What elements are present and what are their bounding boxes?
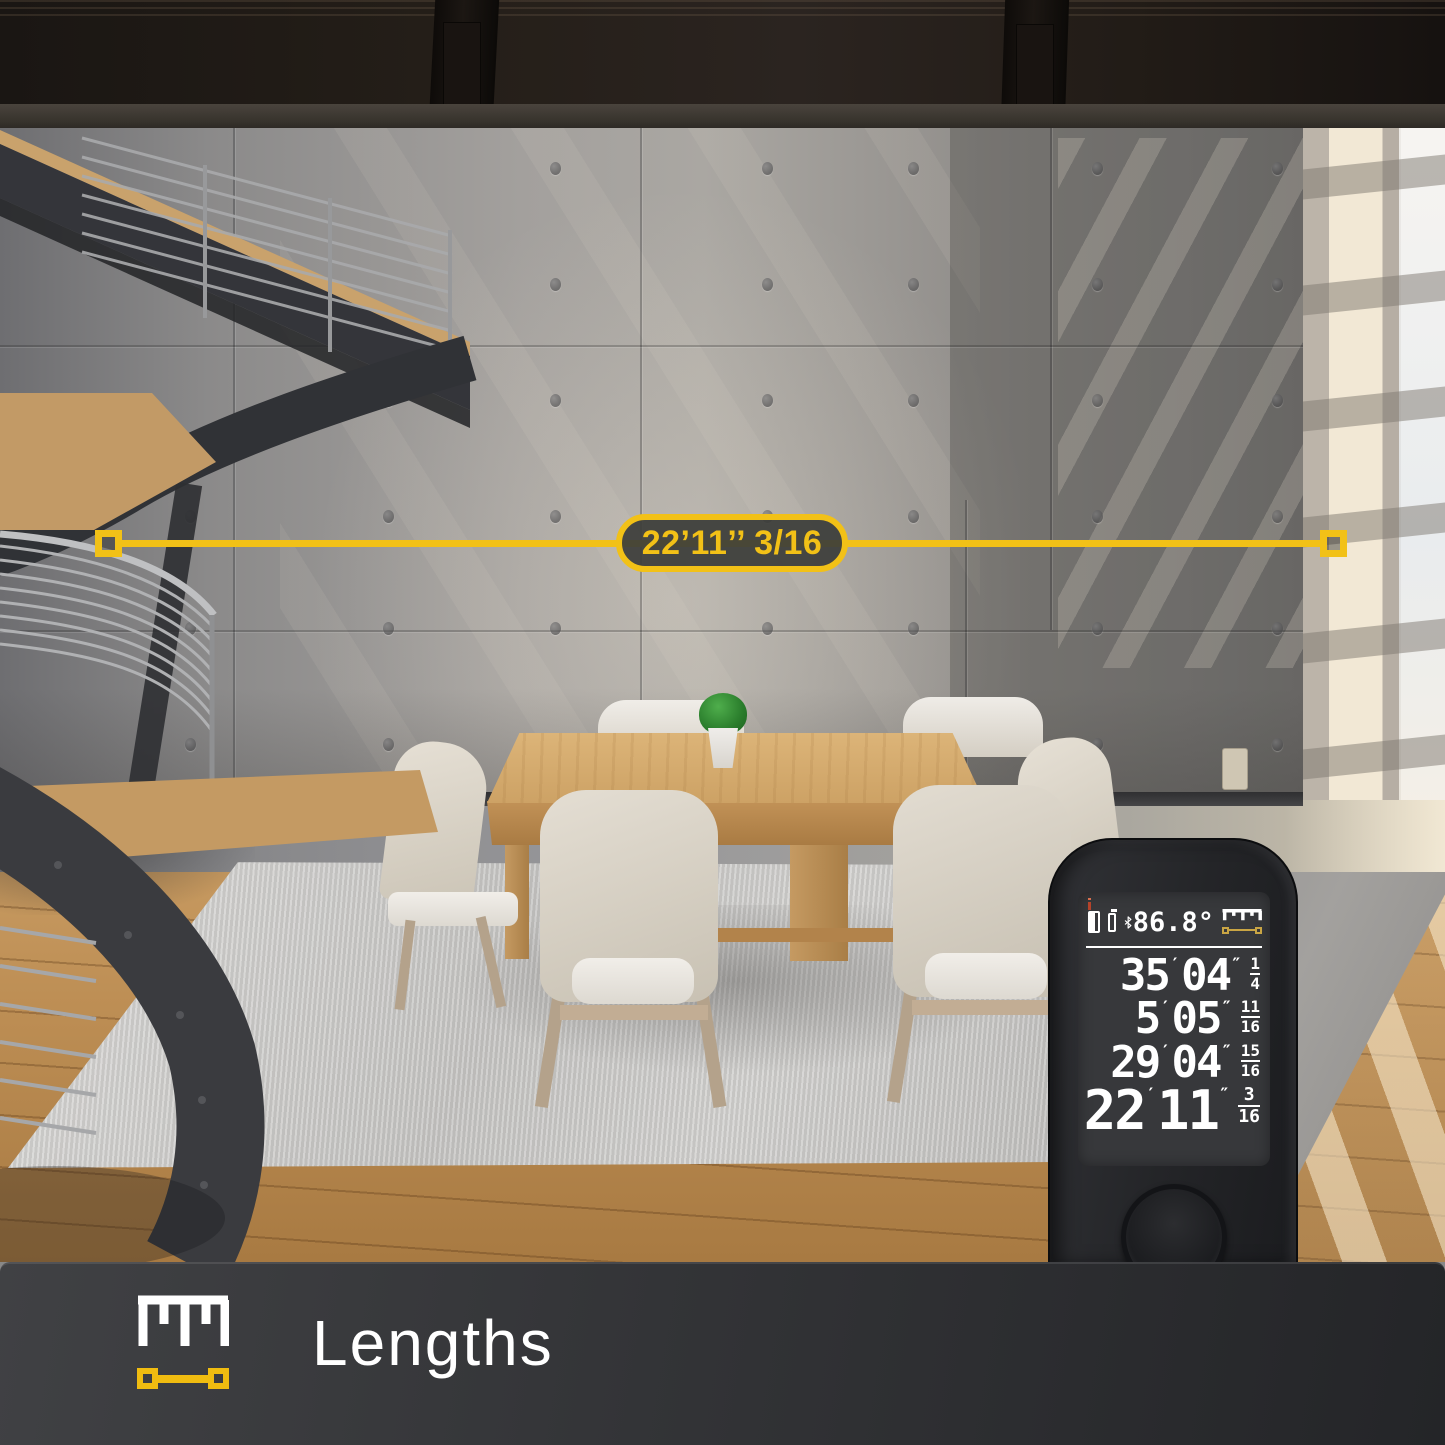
laser-beam-icon xyxy=(1088,902,1091,910)
loft-room-scene: 22’11’’ 3/16 86.8° xyxy=(0,0,1445,1262)
spiral-staircase xyxy=(0,110,520,1262)
device-display: 86.8° 35′04″ 14 5′05″ xyxy=(1078,892,1270,1166)
chair-crossbar xyxy=(560,1005,708,1020)
wall-tie-dot xyxy=(908,394,919,407)
wall-tie-dot xyxy=(1272,278,1283,291)
inches-value: 04 xyxy=(1172,1043,1221,1083)
reading-history-1: 35′04″ 14 xyxy=(1120,956,1260,996)
product-feature-image: 22’11’’ 3/16 86.8° xyxy=(0,0,1445,1445)
fraction: 1516 xyxy=(1241,1043,1260,1079)
feet-mark: ′ xyxy=(1160,1044,1170,1061)
wall-tie-dot xyxy=(762,278,773,291)
measurement-endpoint-right xyxy=(1320,530,1347,557)
feature-title: Lengths xyxy=(312,1306,554,1380)
inches-value: 05 xyxy=(1172,999,1221,1039)
feet-mark: ′ xyxy=(1170,957,1180,974)
wall-tie-dot xyxy=(1272,162,1283,175)
display-divider xyxy=(1086,946,1262,948)
fraction: 1116 xyxy=(1241,999,1260,1035)
mode-indicator xyxy=(1222,909,1262,935)
wall-tie-dot xyxy=(550,394,561,407)
fraction-denominator: 4 xyxy=(1250,976,1260,992)
beam-plate xyxy=(443,22,481,108)
chair-crossbar xyxy=(912,1000,1060,1015)
table-leg-panel xyxy=(790,845,848,961)
floor-light-reflection xyxy=(1285,800,1445,872)
wall-tie-dot xyxy=(1272,510,1283,523)
inches-value: 04 xyxy=(1181,956,1230,996)
laser-distance-measurer: 86.8° 35′04″ 14 5′05″ xyxy=(1048,838,1298,1262)
fraction-denominator: 16 xyxy=(1241,1063,1260,1079)
wall-tie-dot xyxy=(550,278,561,291)
lower-railing-rods xyxy=(0,928,96,1133)
fraction-numerator: 3 xyxy=(1244,1086,1255,1104)
measurement-readings: 35′04″ 14 5′05″ 1116 29′04″ 1516 22′11″ … xyxy=(1084,956,1260,1136)
wall-tie-dot xyxy=(1092,394,1103,407)
ceiling-beam-ribs xyxy=(0,0,1445,20)
measurement-endpoint-left xyxy=(95,530,122,557)
display-status-bar: 86.8° xyxy=(1088,904,1262,940)
fraction-numerator: 11 xyxy=(1241,999,1260,1015)
measure-line-bar xyxy=(153,1375,213,1383)
wall-tie-dot xyxy=(908,162,919,175)
bluetooth-icon xyxy=(1124,912,1132,933)
wall-tie-dot xyxy=(762,622,773,635)
reading-history-2: 5′05″ 1116 xyxy=(1135,999,1260,1039)
inch-mark: ″ xyxy=(1219,1087,1229,1104)
lengths-feature-icon xyxy=(137,1294,229,1404)
wall-tie-dot xyxy=(908,510,919,523)
beam-plate xyxy=(1016,24,1054,110)
feet-mark: ′ xyxy=(1146,1087,1156,1104)
chair-seat-cushion xyxy=(925,953,1047,999)
feet-mark: ′ xyxy=(1160,1000,1170,1017)
feet-value: 35 xyxy=(1120,956,1169,996)
wall-tie-dot xyxy=(1272,738,1283,751)
wall-tie-dot xyxy=(1272,622,1283,635)
fraction: 14 xyxy=(1250,956,1260,992)
device-measure-button xyxy=(1121,1184,1227,1262)
window-glow xyxy=(1399,128,1445,806)
measurement-value: 22’11’’ 3/16 xyxy=(642,524,823,563)
feet-value: 29 xyxy=(1110,1043,1159,1083)
reading-history-3: 29′04″ 1516 xyxy=(1110,1043,1260,1083)
fraction-numerator: 1 xyxy=(1250,956,1260,972)
fraction-denominator: 16 xyxy=(1241,1019,1260,1035)
wall-tie-dot xyxy=(1092,510,1103,523)
inch-mark: ″ xyxy=(1221,1044,1231,1061)
ruler-scale-icon xyxy=(137,1294,229,1354)
wall-tie-dot xyxy=(1272,394,1283,407)
chair-seat-cushion xyxy=(572,958,694,1004)
feature-banner: Lengths xyxy=(0,1262,1445,1445)
fraction-denominator: 16 xyxy=(1238,1108,1260,1126)
wall-tie-dot xyxy=(762,162,773,175)
dining-table-top xyxy=(487,733,985,803)
feet-value: 5 xyxy=(1135,999,1160,1039)
fraction-numerator: 15 xyxy=(1241,1043,1260,1059)
feet-value: 22 xyxy=(1084,1086,1145,1136)
fraction: 316 xyxy=(1238,1086,1260,1126)
measurement-label: 22’11’’ 3/16 xyxy=(616,514,848,572)
wall-tie-dot xyxy=(550,510,561,523)
wall-tie-dot xyxy=(762,394,773,407)
wall-tie-dot xyxy=(908,622,919,635)
wall-tie-dot xyxy=(908,278,919,291)
measure-line-icon xyxy=(137,1368,229,1390)
reading-current: 22′11″ 316 xyxy=(1084,1086,1260,1136)
angle-readout: 86.8° xyxy=(1133,909,1214,936)
measure-line-icon xyxy=(1222,926,1262,935)
wall-tie-dot xyxy=(550,162,561,175)
ruler-scale-icon xyxy=(1222,909,1262,922)
wall-tie-dot xyxy=(550,622,561,635)
wall-tie-dot xyxy=(1092,278,1103,291)
battery-icon xyxy=(1108,913,1117,932)
inch-mark: ″ xyxy=(1231,957,1241,974)
inch-mark: ″ xyxy=(1221,1000,1231,1017)
wall-tie-dot xyxy=(1092,162,1103,175)
wall-outlet xyxy=(1222,748,1248,790)
laser-device-icon xyxy=(1088,911,1100,933)
measure-line-bar xyxy=(1227,929,1257,931)
inches-value: 11 xyxy=(1157,1086,1218,1136)
window-light-zone xyxy=(1303,128,1445,806)
wall-tie-dot xyxy=(1092,622,1103,635)
